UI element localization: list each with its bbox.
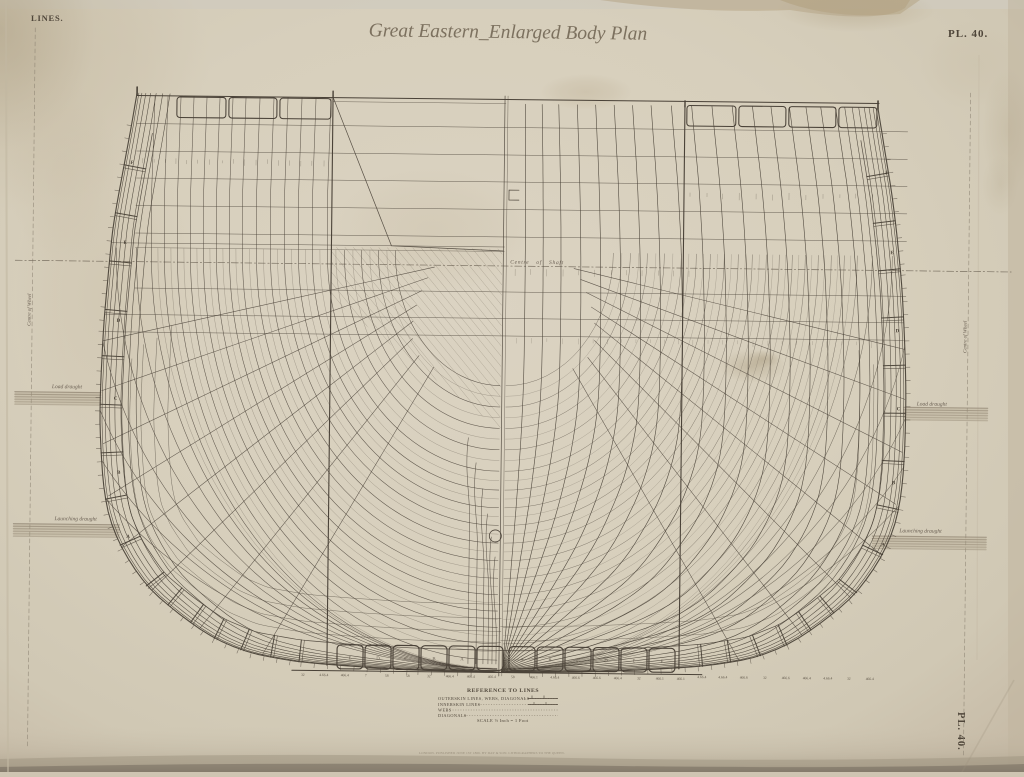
- svg-text:58: 58: [406, 674, 410, 678]
- svg-text:A: A: [520, 658, 524, 663]
- svg-text:Launching draught: Launching draught: [53, 516, 97, 522]
- svg-text:D: D: [117, 319, 121, 324]
- svg-text:E: E: [348, 656, 351, 661]
- svg-text:C: C: [897, 407, 901, 412]
- svg-text:466.4: 466.4: [866, 677, 874, 681]
- svg-text:Launching draught: Launching draught: [898, 528, 942, 534]
- svg-text:D: D: [376, 657, 380, 662]
- svg-text:Load draught: Load draught: [51, 384, 83, 390]
- svg-text:F: F: [661, 660, 664, 665]
- svg-text:4.66.4: 4.66.4: [823, 676, 832, 680]
- svg-text:466.4: 466.4: [446, 674, 454, 678]
- svg-text:A: A: [460, 658, 464, 663]
- svg-text:PL. 40.: PL. 40.: [948, 28, 988, 40]
- svg-text:466.4: 466.4: [803, 676, 811, 680]
- svg-text:Great Eastern_Enlarged Body Pl: Great Eastern_Enlarged Body Plan: [369, 20, 648, 44]
- svg-text:B: B: [548, 659, 551, 664]
- svg-text:466.6: 466.6: [572, 676, 580, 680]
- svg-text:466.4: 466.4: [488, 675, 496, 679]
- svg-text:C: C: [114, 397, 118, 402]
- svg-text:LINES.: LINES.: [31, 13, 63, 23]
- svg-text:A: A: [881, 543, 885, 548]
- svg-text:32: 32: [637, 676, 641, 680]
- svg-text:E: E: [632, 659, 635, 664]
- svg-text:32: 32: [763, 676, 767, 680]
- svg-text:WEBS: WEBS: [438, 708, 452, 713]
- svg-text:Load draught: Load draught: [916, 401, 948, 407]
- svg-text:466.1: 466.1: [656, 677, 664, 681]
- svg-text:466.4: 466.4: [614, 676, 622, 680]
- svg-text:F: F: [130, 161, 133, 166]
- svg-text:DIAGONALS: DIAGONALS: [438, 713, 467, 718]
- svg-text:32: 32: [427, 674, 431, 678]
- svg-text:Centre of Wheel: Centre of Wheel: [28, 293, 33, 326]
- svg-text:INNERSKIN LINES: INNERSKIN LINES: [438, 702, 481, 707]
- svg-text:466.1: 466.1: [677, 677, 685, 681]
- svg-text:D: D: [604, 659, 608, 664]
- svg-text:466.1: 466.1: [530, 675, 538, 679]
- svg-text:32: 32: [847, 677, 851, 681]
- svg-text:A: A: [126, 535, 130, 540]
- svg-text:LONDON. PUBLISHED JUNE 1ST 186: LONDON. PUBLISHED JUNE 1ST 1866. BY DAY …: [419, 751, 565, 755]
- svg-text:466.4: 466.4: [341, 673, 349, 677]
- svg-text:4.66.4: 4.66.4: [718, 675, 727, 679]
- svg-text:4.66.4: 4.66.4: [319, 673, 328, 677]
- svg-text:4.66.4: 4.66.4: [550, 676, 559, 680]
- svg-text:32: 32: [301, 673, 305, 677]
- svg-text:4.66.4: 4.66.4: [697, 675, 706, 679]
- svg-text:PL. 40.: PL. 40.: [955, 712, 966, 751]
- svg-text:C: C: [404, 657, 407, 662]
- svg-text:58: 58: [511, 675, 515, 679]
- svg-text:58: 58: [385, 674, 389, 678]
- svg-text:F: F: [885, 171, 888, 176]
- svg-text:466.4: 466.4: [467, 675, 475, 679]
- svg-text:Centre of Shaft: Centre of Shaft: [510, 259, 564, 267]
- svg-text:B: B: [432, 657, 435, 662]
- svg-text:466.6: 466.6: [782, 676, 790, 680]
- svg-text:C: C: [576, 659, 579, 664]
- svg-text:REFERENCE TO LINES: REFERENCE TO LINES: [467, 688, 539, 694]
- svg-text:D: D: [896, 329, 900, 334]
- svg-text:SCALE ½ Inch = 1 Foot: SCALE ½ Inch = 1 Foot: [477, 718, 529, 723]
- svg-text:466.6: 466.6: [740, 676, 748, 680]
- svg-text:7: 7: [365, 674, 367, 678]
- svg-text:Centre of Wheel: Centre of Wheel: [963, 320, 968, 353]
- svg-text:466.6: 466.6: [593, 676, 601, 680]
